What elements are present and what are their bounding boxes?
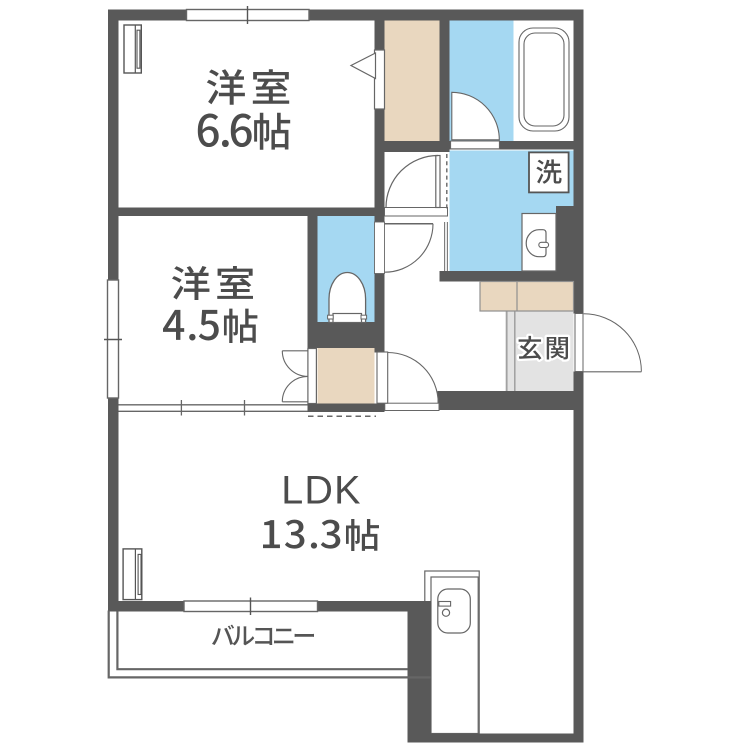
svg-text:LDK: LDK xyxy=(281,469,361,513)
